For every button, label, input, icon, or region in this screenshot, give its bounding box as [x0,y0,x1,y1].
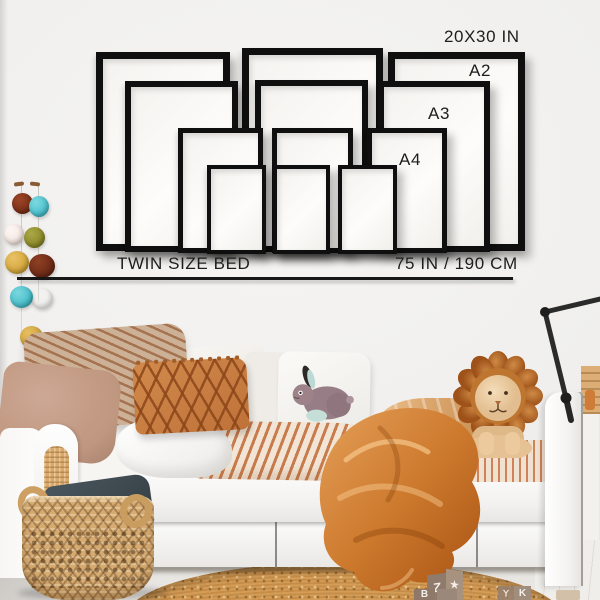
block-face-blank [437,589,457,600]
pompom-blush [4,224,24,245]
label-size-20x30: 20X30 IN [444,27,520,47]
label-size-a3: A3 [428,104,450,124]
block-face-k: K [514,586,531,600]
drawer-divider [275,522,277,567]
frame-size-guide-mockup: 20X30 IN A2 A3 A4 TWIN SIZE BED 75 IN / … [0,0,600,600]
label-bed-width: 75 IN / 190 CM [395,254,518,274]
frame-a4-right [338,165,397,254]
label-twin-size-bed: TWIN SIZE BED [117,254,250,274]
desk-lamp [518,286,600,426]
frame-a4-left [207,165,266,254]
label-size-a4: A4 [399,150,421,170]
block-face-b: B [414,589,435,600]
wood-block-plain [556,590,580,600]
frame-a4-center [273,165,330,254]
pompom-mustard [5,251,29,274]
bed-width-line [17,277,513,280]
block-face-y: ⅄ [498,586,514,600]
tufted-terracotta-pillow [132,357,250,435]
pompom-olive [24,227,45,248]
toy-block-b: B [414,589,458,600]
pompom-teal [29,196,49,217]
basket-weave [30,530,146,588]
label-size-a2: A2 [469,61,491,81]
pompom-dark-rust [29,254,55,278]
pompom-blush [31,288,53,309]
toy-block-k: ⅄ K [498,586,531,600]
pompom-teal [10,286,33,308]
